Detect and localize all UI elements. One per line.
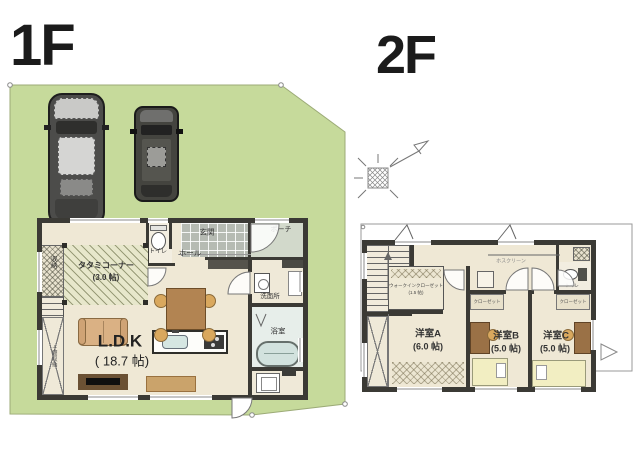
pillow (496, 363, 506, 378)
label-bath: 浴室 (271, 327, 286, 335)
floorplan-canvas: 1F 2F (0, 0, 640, 453)
car-van (134, 106, 179, 202)
label-wic-name: ウォークインクローゼット (389, 284, 443, 289)
van-mirror (176, 129, 183, 134)
bathtub-icon (256, 341, 300, 367)
label-wic-size: (1.5 帖) (408, 291, 423, 296)
closet-hatch-2f (573, 247, 590, 261)
window (498, 240, 534, 245)
label-storage: 収納 (49, 256, 56, 269)
floor2-plan (362, 240, 596, 392)
label-toilet-1f: トイレ (149, 249, 167, 255)
window (591, 320, 596, 350)
car-rear-window (60, 179, 93, 196)
washer-pan (256, 373, 280, 393)
wall (169, 223, 172, 249)
label-doma-storage: 土間収納 (50, 345, 56, 367)
toilet-bowl-icon (151, 232, 166, 250)
stairs-1f (42, 297, 64, 317)
floor1-title: 1F (10, 12, 74, 79)
post (62, 300, 67, 305)
post (143, 300, 148, 305)
car-suv (48, 93, 105, 226)
floor2-title: 2F (376, 24, 435, 86)
window (70, 218, 140, 223)
pan-inner (261, 377, 277, 391)
van-sunroof (147, 147, 166, 167)
toilet-tank (578, 268, 587, 281)
wall (248, 223, 251, 257)
cabinet (282, 369, 296, 376)
pillow (536, 365, 547, 380)
car-mirror (44, 125, 51, 130)
car-roof (58, 137, 95, 175)
van-hood (140, 110, 173, 122)
label-closetB: クローゼット (474, 300, 501, 305)
car-hood (54, 98, 99, 119)
post (62, 243, 67, 248)
window (37, 252, 42, 292)
window (298, 338, 303, 362)
burner (215, 337, 219, 341)
floor1-plan (37, 218, 308, 400)
hatch-opening (477, 271, 494, 288)
toilet-tank (150, 225, 167, 231)
label-roomB-name: 洋室B (493, 331, 519, 341)
window (150, 395, 212, 400)
window (475, 387, 517, 392)
washer-drum (258, 279, 269, 290)
window (255, 218, 289, 223)
window (148, 218, 168, 223)
label-tatami-size: (3.0 帖) (93, 274, 120, 282)
van-windshield (141, 125, 172, 135)
window (88, 395, 138, 400)
car-tail (55, 199, 98, 220)
bed-roomB (472, 358, 508, 386)
dining-chair (154, 328, 168, 342)
post (143, 243, 148, 248)
roomA-hatch-area (392, 362, 464, 384)
label-porch: ポーチ (271, 227, 292, 234)
label-roomA-size: (6.0 帖) (413, 343, 443, 352)
dining-chair (202, 328, 216, 342)
closet-2f-left (367, 316, 388, 387)
label-roomA-name: 洋室A (415, 329, 441, 339)
bed-roomC (532, 360, 586, 387)
label-washroom: 洗面所 (260, 294, 280, 301)
label-closetC: クローゼット (560, 300, 587, 305)
car-windshield (56, 121, 97, 134)
window (397, 387, 442, 392)
wall-thin (388, 314, 389, 387)
window (362, 253, 367, 279)
closet-storage (42, 245, 64, 297)
van-tail (141, 185, 172, 197)
label-roomB-size: (5.0 帖) (491, 345, 521, 354)
label-genkan: 玄関 (200, 228, 215, 236)
label-tatami-name: タタミコーナー (78, 262, 134, 270)
label-toilet-2f: トイレ (565, 284, 579, 289)
window (298, 272, 303, 292)
low-table (146, 376, 196, 392)
label-ldk-size: ( 18.7 帖) (95, 355, 149, 368)
label-roomC-size: (5.0 帖) (540, 345, 570, 354)
toilet-bowl-icon (563, 269, 578, 280)
window (37, 330, 42, 365)
label-hoscreen: ホスクリーン (496, 260, 526, 265)
label-hall: ホール (179, 249, 202, 257)
washing-machine (254, 273, 270, 293)
car-mirror (102, 125, 109, 130)
shoe-cabinet (208, 260, 248, 269)
wic-rod (391, 269, 441, 278)
window (395, 240, 431, 245)
vanity-counter (282, 260, 303, 268)
label-ldk-name: L.D.K (98, 333, 142, 350)
dining-table (166, 288, 206, 330)
tv-board (78, 374, 128, 390)
tv-icon (86, 378, 120, 385)
label-roomC-name: 洋室C (543, 331, 569, 341)
wall (146, 263, 175, 266)
sofa-arm (78, 318, 86, 345)
wall (388, 310, 443, 314)
window (535, 387, 581, 392)
burner (211, 343, 215, 347)
window (362, 343, 367, 377)
north-arrow-icon (354, 141, 428, 198)
van-mirror (130, 129, 137, 134)
desk-roomC (574, 322, 591, 354)
tub-line (264, 353, 294, 354)
